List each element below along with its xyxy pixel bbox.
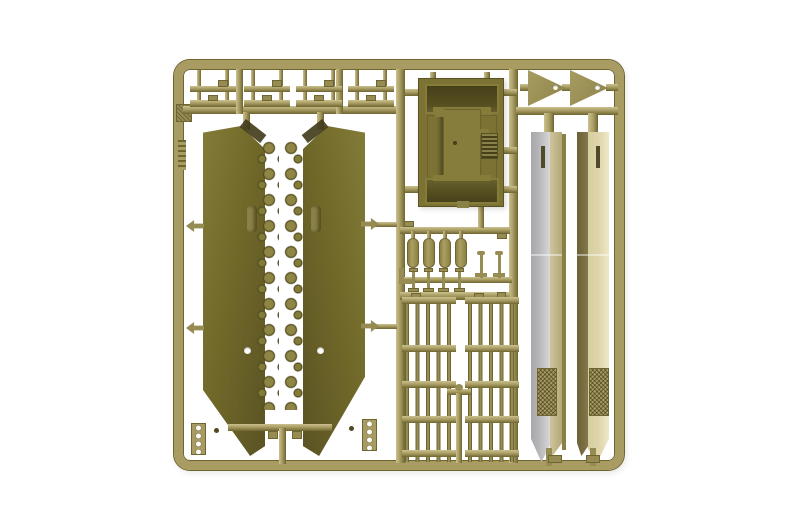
spool-cap xyxy=(439,268,448,272)
blade-slot xyxy=(541,146,545,168)
bracket-bar-part xyxy=(244,100,290,107)
spool-cap xyxy=(454,288,465,292)
bracket-part-group xyxy=(296,70,342,115)
box-grille-detail xyxy=(481,133,498,159)
gate-tab xyxy=(404,221,414,227)
suspension-knob-row-left xyxy=(257,138,279,410)
grille-rung xyxy=(402,381,456,388)
box-raised-panel xyxy=(443,109,481,179)
blade-textured-pad xyxy=(589,368,609,416)
pin-foot xyxy=(493,273,505,277)
ladder-clip-left xyxy=(191,423,206,455)
grille-rung xyxy=(465,381,519,388)
grille-rung xyxy=(465,297,519,304)
runner-rail xyxy=(516,107,618,115)
spool-cap xyxy=(424,268,433,272)
sprue-gate xyxy=(303,70,307,87)
photo-model-kit-sprue xyxy=(0,0,800,530)
cylinder-part xyxy=(455,238,467,268)
gate-tab xyxy=(268,431,278,439)
runner-rail xyxy=(279,428,286,464)
blade-panel-cream xyxy=(577,132,611,462)
sprue-gate xyxy=(606,84,618,91)
embossed-marking xyxy=(178,140,186,170)
gate-tab xyxy=(366,95,376,101)
gate-tab xyxy=(218,80,228,87)
grille-rung xyxy=(465,345,519,352)
gate-tab xyxy=(324,80,334,87)
bracket-bar-part xyxy=(348,100,394,107)
blade-seam xyxy=(531,254,562,256)
spool-cap xyxy=(423,288,434,292)
gate-tab xyxy=(292,431,302,439)
panel-hole-left xyxy=(244,347,251,354)
runner-rail xyxy=(236,69,243,114)
bracket-bar-part xyxy=(190,100,236,107)
bracket-part-group xyxy=(348,70,394,115)
blade-textured-pad xyxy=(537,368,557,416)
gate-tab xyxy=(548,455,562,463)
grille-rung xyxy=(402,345,456,352)
sprue-gate xyxy=(405,89,419,96)
box-hole-detail xyxy=(453,141,457,145)
sprue-gate xyxy=(355,70,359,87)
blade-olive-edge xyxy=(577,132,588,456)
panel-stub-left xyxy=(247,206,257,232)
panel-stub-right xyxy=(311,206,321,232)
gate-tab xyxy=(376,80,386,87)
bracket-part-group xyxy=(244,70,290,115)
blade-slot xyxy=(596,146,600,168)
spool-cap xyxy=(409,268,418,272)
runner-rail xyxy=(396,69,405,463)
sprue-gate xyxy=(478,204,484,228)
triangle-hole xyxy=(595,85,600,90)
gate-tab xyxy=(586,455,600,463)
spool-cap xyxy=(455,268,464,272)
box-body-part xyxy=(418,78,504,207)
t-part-stem xyxy=(456,393,462,463)
blade-edge xyxy=(562,134,566,450)
blade-panel-gray xyxy=(531,132,567,462)
suspension-knob-row-right xyxy=(283,138,305,410)
sprue-gate xyxy=(405,186,419,193)
sprue-gate xyxy=(520,84,529,91)
cylinder-part xyxy=(407,238,419,268)
gate-tab xyxy=(262,95,272,101)
grille-rung xyxy=(402,450,456,457)
rivet-detail xyxy=(214,428,219,433)
gate-tab xyxy=(272,80,282,87)
cylinder-part xyxy=(423,238,435,268)
triangle-hole xyxy=(553,85,558,90)
grille-rung xyxy=(402,416,456,423)
cylinder-part xyxy=(439,238,451,268)
runner-rail xyxy=(400,227,510,234)
box-bottom-lip xyxy=(433,175,491,181)
gate-tab xyxy=(314,95,324,101)
sprue-gate xyxy=(503,89,517,96)
runner-rail xyxy=(400,277,512,283)
l-bracket-part xyxy=(399,279,413,284)
panel-hole-right xyxy=(317,347,324,354)
pin-foot xyxy=(475,273,487,277)
sprue-gate xyxy=(251,70,255,87)
sprue-gate xyxy=(503,186,517,193)
ladder-clip-right xyxy=(362,419,377,451)
grille-rung xyxy=(402,297,456,304)
box-tab xyxy=(457,201,469,208)
rivet-detail xyxy=(349,426,354,431)
bracket-bar-part xyxy=(296,100,342,107)
blade-seam xyxy=(577,254,609,256)
bracket-part-group xyxy=(190,70,236,115)
gate-tab xyxy=(497,233,507,239)
gate-tab xyxy=(208,95,218,101)
spool-cap xyxy=(438,288,449,292)
box-tab xyxy=(435,109,444,117)
t-part-knob xyxy=(455,384,463,391)
spool-cap xyxy=(408,288,419,292)
sprue-gate xyxy=(503,147,517,154)
grille-rung xyxy=(465,450,519,457)
sprue-gate xyxy=(197,70,201,87)
grille-rung xyxy=(465,416,519,423)
